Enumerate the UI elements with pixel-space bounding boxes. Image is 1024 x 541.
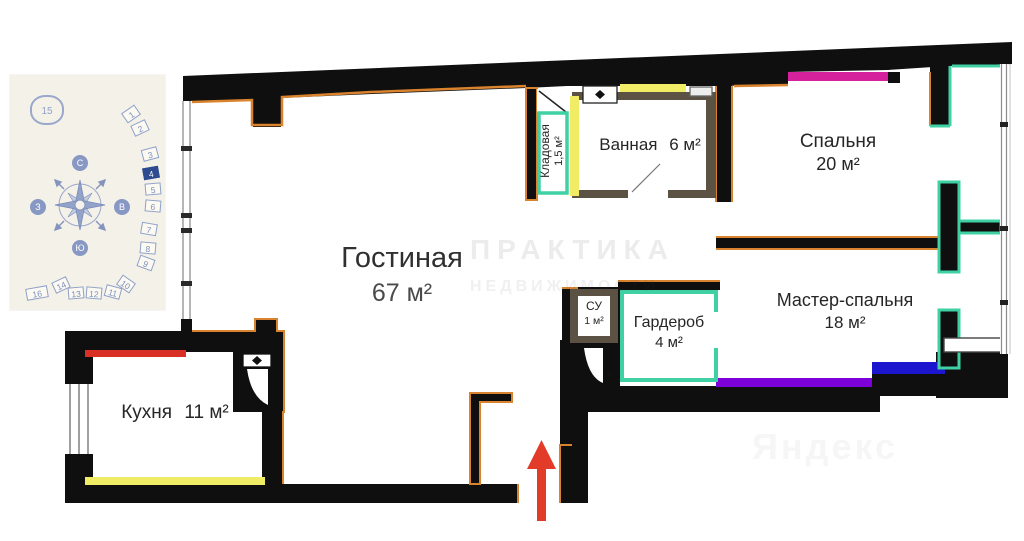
room-name: Спальня xyxy=(800,131,876,152)
trim-bedroom-top xyxy=(734,85,788,86)
watermark-corner: Яндекс xyxy=(752,426,898,468)
room-name: Кладовая xyxy=(538,124,552,178)
wall-bottom-band xyxy=(560,386,880,412)
wall-accent-yellow-kitchen xyxy=(85,477,265,485)
pillar-bedroom-right xyxy=(930,64,950,126)
wall-accent-purple-master xyxy=(716,378,872,387)
watermark-center-line2: НЕДВИЖИМОСТИ xyxy=(470,278,659,296)
room-area: 18 м² xyxy=(735,313,955,334)
room-area: 20 м² xyxy=(748,154,928,176)
room-name: Гардероб xyxy=(634,314,704,331)
floor-plan-page: С З В Ю 1 2 3 4 5 6 7 8 9 10 11 12 13 14… xyxy=(0,0,1024,541)
wall-storage-left xyxy=(526,88,537,200)
wall-entry-L xyxy=(470,393,512,484)
entrance-arrow xyxy=(527,440,556,521)
wall-accent-red-kitchen xyxy=(85,350,186,357)
window-kitchen xyxy=(65,384,93,454)
room-label-bedroom: Спальня 20 м² xyxy=(748,130,928,176)
wall-left-corner xyxy=(181,319,192,332)
window-left xyxy=(181,101,192,319)
room-name: Кухня xyxy=(121,402,172,423)
room-label-bathroom: Ванная 6 м² xyxy=(570,135,730,156)
room-label-master-bedroom: Мастер-спальня 18 м² xyxy=(735,290,955,334)
room-name: Ванная xyxy=(599,135,657,154)
wall-between-bedrooms xyxy=(716,237,946,249)
room-label-storage: Кладовая 1,5 м² xyxy=(538,109,566,193)
wall-master-bottom-right xyxy=(872,374,945,396)
room-label-kitchen: Кухня 11 м² xyxy=(90,401,260,424)
pier-balcony-arm xyxy=(959,221,1001,233)
watermark-center-line1: ПРАКТИКА xyxy=(470,234,675,266)
wall-notch-bedroom xyxy=(888,72,900,83)
room-name: Гостиная xyxy=(341,242,463,274)
room-label-wc: СУ 1 м² xyxy=(577,299,611,327)
room-name: Мастер-спальня xyxy=(777,290,914,310)
window-right xyxy=(1000,64,1010,354)
room-area: 6 м² xyxy=(669,135,701,154)
wall-accent-pink-bedroom xyxy=(788,72,888,81)
room-area: 4 м² xyxy=(619,334,719,352)
room-label-wardrobe: Гардероб 4 м² xyxy=(619,313,719,352)
balcony-sill xyxy=(944,338,1002,352)
room-name: СУ xyxy=(586,299,602,313)
wall-accent-blue-master xyxy=(872,362,945,374)
pier-balcony-middle xyxy=(939,182,959,272)
room-area: 1,5 м² xyxy=(553,109,566,193)
room-area: 11 м² xyxy=(184,402,228,423)
room-area: 1 м² xyxy=(577,315,611,328)
